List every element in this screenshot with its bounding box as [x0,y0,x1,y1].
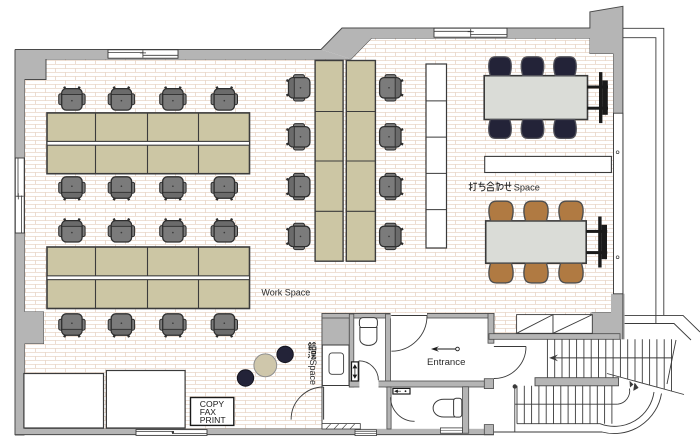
svg-text:Space: Space [514,183,540,193]
svg-text:Entrance: Entrance [427,357,465,368]
svg-text:Work Space: Work Space [261,287,310,297]
svg-text:Space: Space [308,360,318,386]
